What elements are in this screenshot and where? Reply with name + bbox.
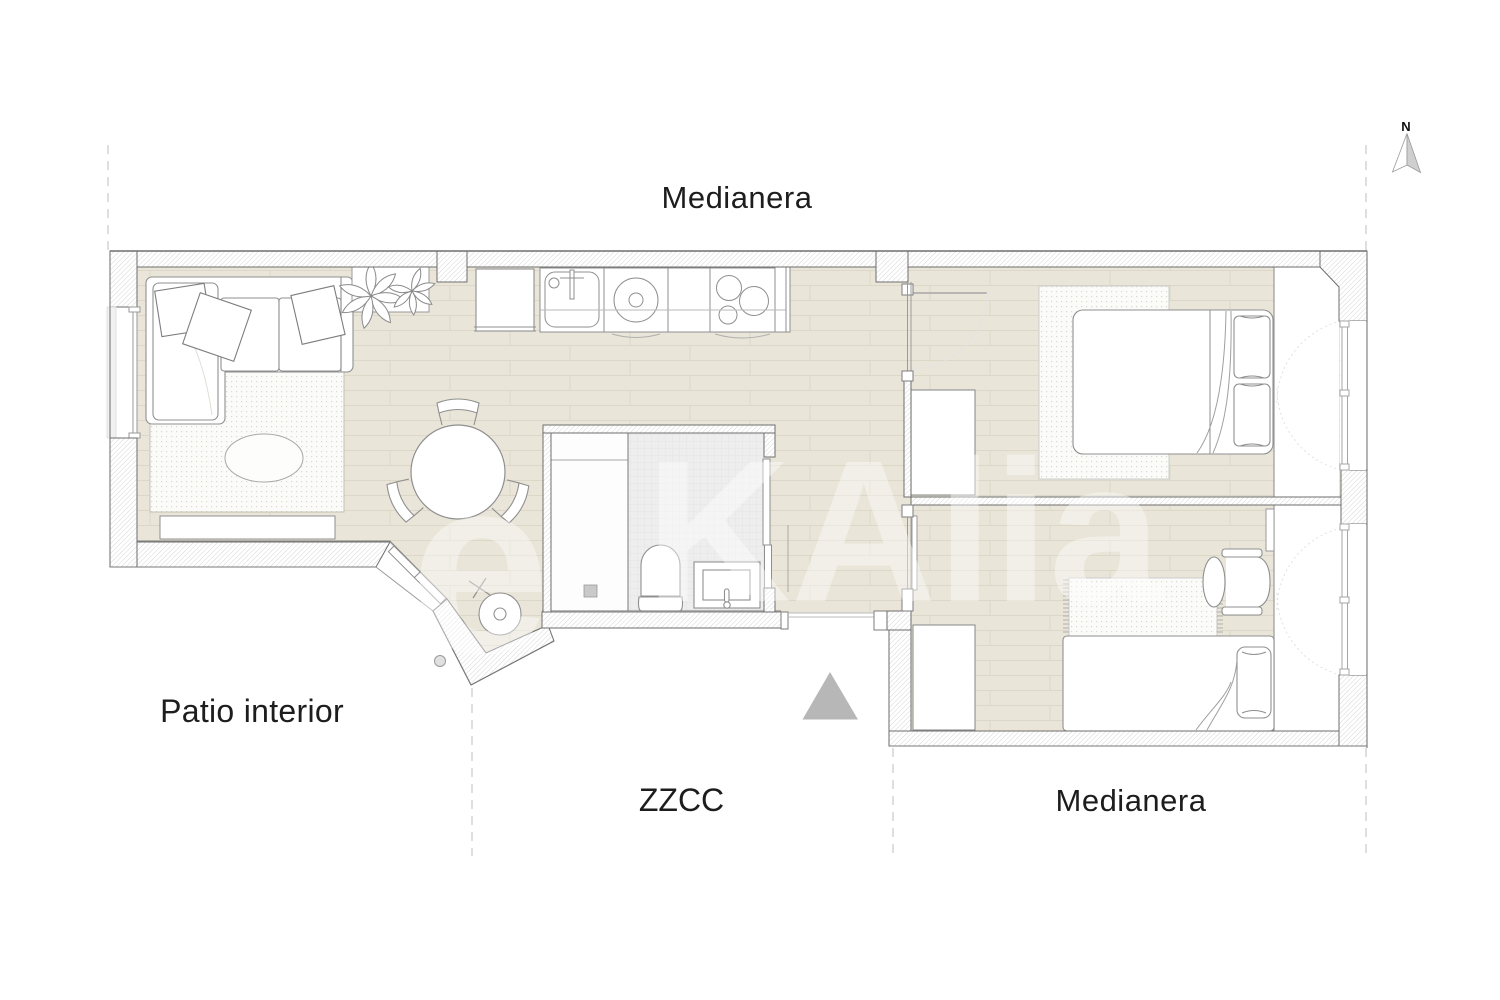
- svg-text:ZZCC: ZZCC: [639, 782, 724, 818]
- svg-text:Patio interior: Patio interior: [160, 693, 344, 729]
- svg-text:e: e: [410, 425, 550, 706]
- svg-text:Medianera: Medianera: [1056, 783, 1207, 818]
- svg-text:N: N: [1401, 119, 1410, 134]
- svg-text:KAlia: KAlia: [645, 418, 1163, 644]
- svg-text:Medianera: Medianera: [662, 180, 813, 215]
